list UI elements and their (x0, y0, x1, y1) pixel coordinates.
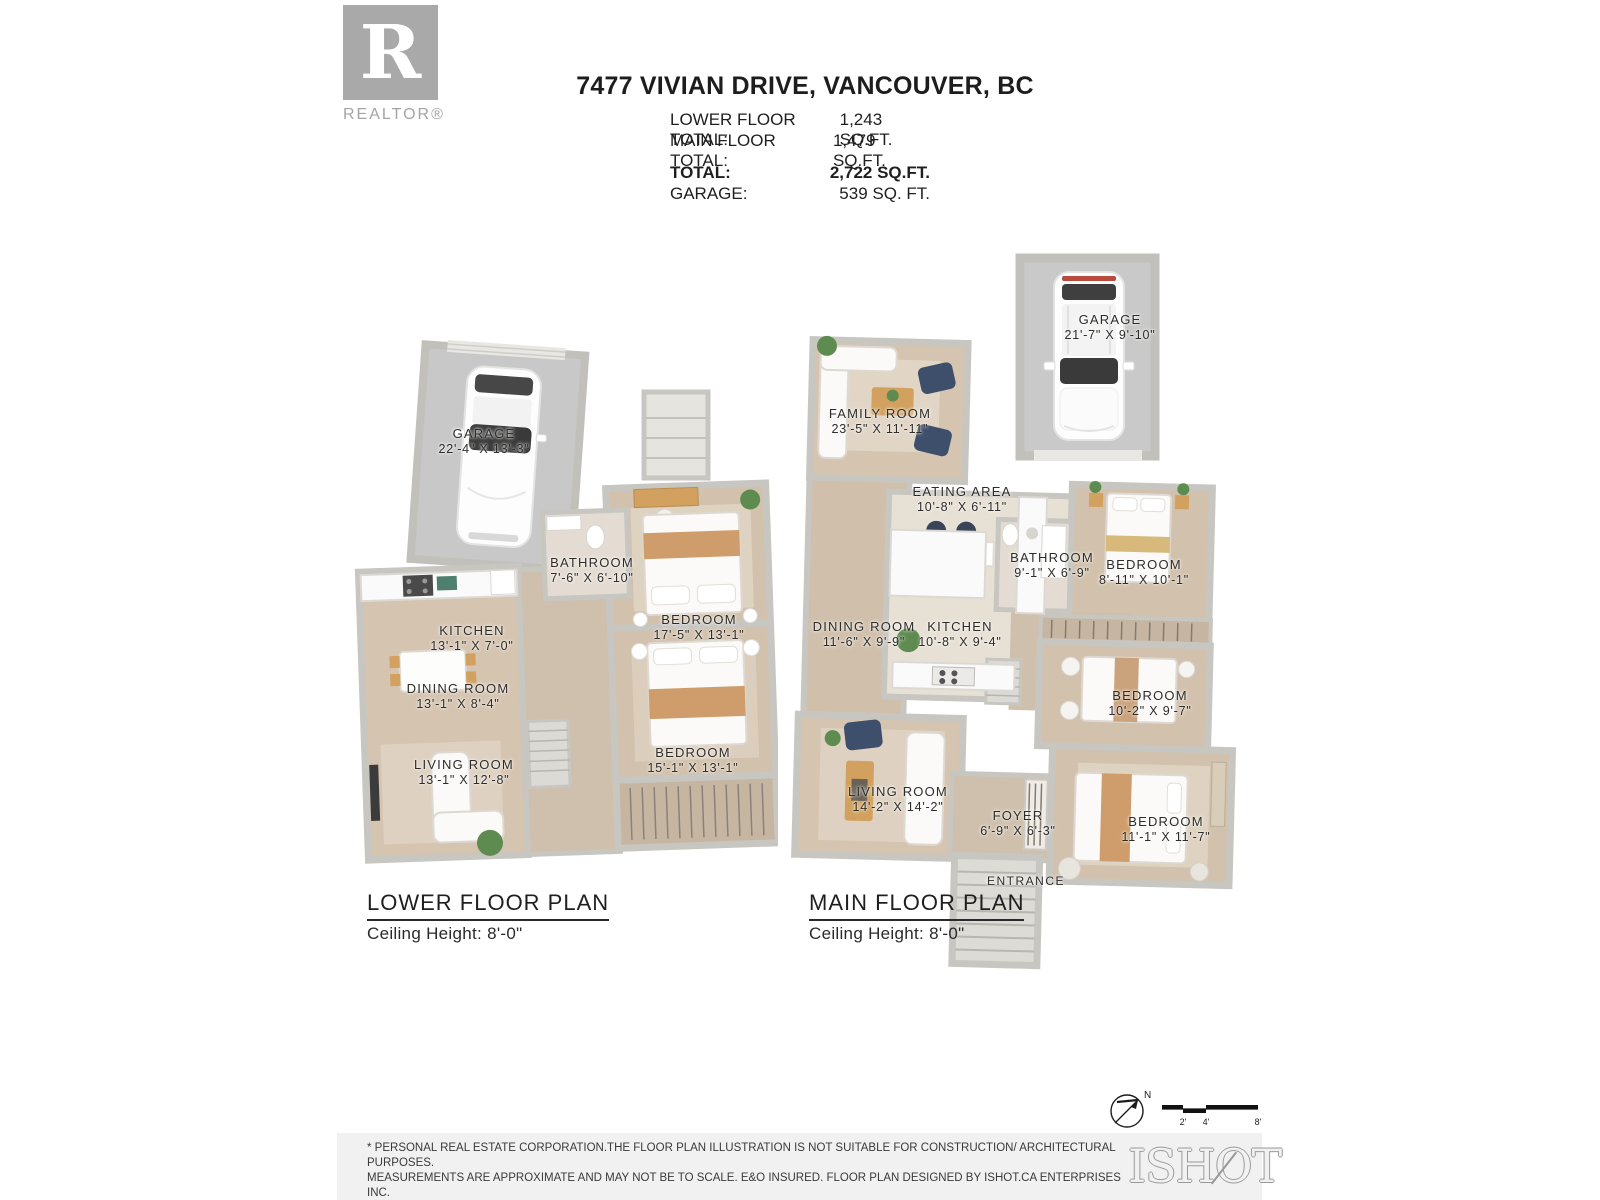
bathroom-vanity (547, 515, 581, 530)
room-label-living-room: LIVING ROOM 14'-2" X 14'-2" (848, 784, 948, 814)
suv-icon (1044, 272, 1134, 440)
total-row: MAIN FLOOR TOTAL: 1,479 SQ.FT. (670, 141, 930, 163)
room-label-kitchen: KITCHEN 10'-8" X 9'-4" (918, 619, 1001, 649)
room-label-kitchen: KITCHEN 13'-1" X 7'-0" (430, 623, 513, 653)
garage-door (1034, 450, 1142, 461)
lower-floor-plan-rendering (348, 340, 778, 875)
main-garage-rendering (1010, 250, 1165, 465)
bed (630, 511, 758, 626)
total-value: 539 SQ. FT. (839, 184, 930, 204)
total-label: TOTAL: (670, 163, 731, 183)
realtor-logo-label: REALTOR® (343, 106, 439, 124)
lower-floor-title: LOWER FLOOR PLAN (367, 890, 609, 921)
disclaimer-line: MEASUREMENTS ARE APPROXIMATE AND MAY NOT… (367, 1171, 1127, 1200)
toilet (586, 525, 605, 550)
total-value: 2,722 SQ.FT. (830, 163, 930, 183)
room-label-bathroom: BATHROOM 7'-6" X 6'-10" (550, 555, 634, 585)
room-label-bathroom: BATHROOM 9'-1" X 6'-9" (1010, 550, 1094, 580)
main-floor-ceiling-height: Ceiling Height: 8'-0" (809, 924, 1024, 944)
disclaimer-line: * PERSONAL REAL ESTATE CORPORATION.THE F… (367, 1141, 1127, 1171)
lower-entry-steps (644, 392, 708, 478)
lower-closet (616, 775, 778, 849)
north-compass-icon: N (1111, 1090, 1151, 1127)
scale-tick-2: 2' (1180, 1117, 1187, 1127)
room-label-entrance: ENTRANCE (987, 874, 1065, 888)
scale-bar: 2' 4' 8' (1162, 1105, 1262, 1127)
total-label: GARAGE: (670, 184, 747, 204)
realtor-logo-r: R (360, 16, 422, 90)
page-title: 7477 VIVIAN DRIVE, VANCOUVER, BC (555, 72, 1055, 101)
compass-and-scale: N 2' 4' 8' (1100, 1085, 1270, 1140)
north-label: N (1144, 1090, 1151, 1101)
realtor-logo-square: R (343, 5, 438, 100)
area-totals: LOWER FLOOR TOTAL: 1,243 SQ.FT. MAIN FLO… (670, 119, 930, 205)
room-label-garage: GARAGE 22'-4" X 13'-3" (439, 426, 530, 456)
room-label-dining-room: DINING ROOM 11'-6" X 9'-9" (813, 619, 916, 649)
realtor-logo: R REALTOR® (343, 5, 439, 124)
ishot-logo-text: ISHOT (1128, 1142, 1268, 1190)
ishot-logo: ISHOT (1128, 1142, 1268, 1194)
room-label-foyer: FOYER 6'-9" X 6'-3" (980, 808, 1055, 838)
living-room-furniture (818, 717, 945, 845)
room-label-bedroom: BEDROOM 17'-5" X 13'-1" (654, 612, 745, 642)
lower-floor-title-block: LOWER FLOOR PLAN Ceiling Height: 8'-0" (367, 890, 609, 944)
bed (631, 639, 763, 747)
room-label-bedroom: BEDROOM 11'-1" X 11'-7" (1121, 814, 1210, 844)
room-label-bedroom: BEDROOM 10'-2" X 9'-7" (1108, 688, 1191, 718)
room-label-living-room: LIVING ROOM 13'-1" X 12'-8" (414, 757, 514, 787)
scale-tick-4: 4' (1203, 1117, 1210, 1127)
main-floor-title: MAIN FLOOR PLAN (809, 890, 1024, 921)
desk (634, 487, 699, 507)
kitchen-counter (361, 570, 518, 601)
room-label-dining-room: DINING ROOM 13'-1" X 8'-4" (407, 681, 510, 711)
lower-floor-ceiling-height: Ceiling Height: 8'-0" (367, 924, 609, 944)
scale-tick-8: 8' (1255, 1117, 1262, 1127)
room-label-bedroom: BEDROOM 15'-1" X 13'-1" (648, 745, 739, 775)
floor-plan-sheet: R REALTOR® 7477 VIVIAN DRIVE, VANCOUVER,… (0, 0, 1600, 1200)
disclaimer: * PERSONAL REAL ESTATE CORPORATION.THE F… (367, 1141, 1127, 1200)
main-floor-title-block: MAIN FLOOR PLAN Ceiling Height: 8'-0" (809, 890, 1024, 944)
room-label-family-room: FAMILY ROOM 23'-5" X 11'-11" (829, 406, 931, 436)
stairs (528, 720, 570, 787)
total-row: GARAGE: 539 SQ. FT. (670, 184, 930, 206)
room-label-garage: GARAGE 21'-7" X 9'-10" (1065, 312, 1156, 342)
room-label-eating-area: EATING AREA 10'-8" X 6'-11" (913, 484, 1012, 514)
room-label-bedroom: BEDROOM 8'-11" X 10'-1" (1099, 557, 1189, 587)
